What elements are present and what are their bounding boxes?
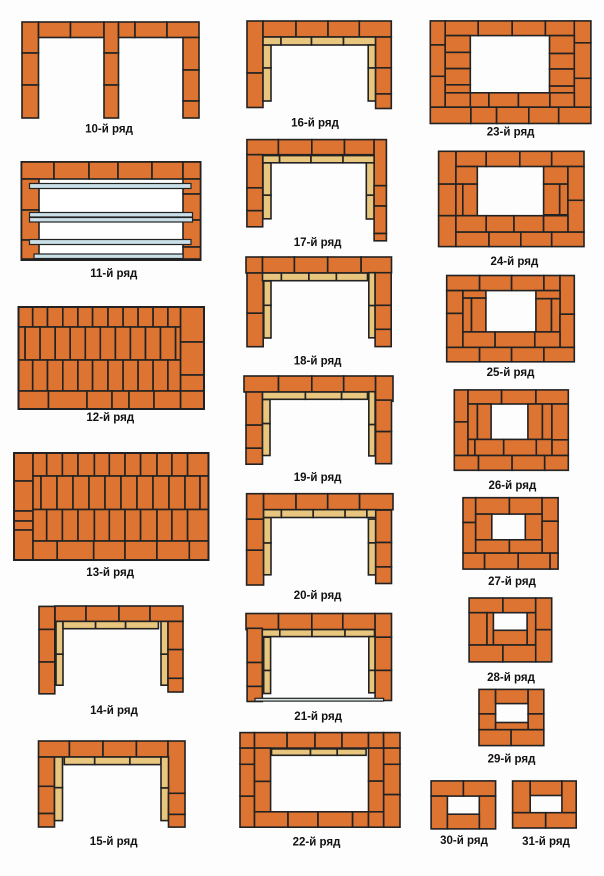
svg-text:31-й ряд: 31-й ряд <box>522 836 570 848</box>
svg-text:22-й ряд: 22-й ряд <box>293 837 341 849</box>
svg-text:14-й ряд: 14-й ряд <box>90 705 138 717</box>
svg-text:15-й ряд: 15-й ряд <box>90 836 138 848</box>
svg-text:29-й ряд: 29-й ряд <box>488 754 536 766</box>
svg-text:24-й ряд: 24-й ряд <box>491 256 539 268</box>
svg-text:11-й ряд: 11-й ряд <box>90 268 138 280</box>
svg-text:18-й ряд: 18-й ряд <box>294 356 342 368</box>
svg-text:28-й ряд: 28-й ряд <box>487 672 535 684</box>
svg-text:17-й ряд: 17-й ряд <box>294 237 342 249</box>
svg-text:12-й ряд: 12-й ряд <box>86 412 134 424</box>
svg-text:30-й ряд: 30-й ряд <box>440 835 488 847</box>
svg-text:23-й ряд: 23-й ряд <box>487 127 535 139</box>
svg-text:19-й ряд: 19-й ряд <box>294 472 342 484</box>
svg-text:16-й ряд: 16-й ряд <box>291 118 339 130</box>
svg-text:13-й ряд: 13-й ряд <box>86 567 134 579</box>
svg-text:21-й ряд: 21-й ряд <box>294 711 342 723</box>
svg-text:26-й ряд: 26-й ряд <box>489 480 537 492</box>
svg-text:10-й ряд: 10-й ряд <box>85 124 133 136</box>
svg-text:20-й ряд: 20-й ряд <box>294 590 342 602</box>
svg-text:25-й ряд: 25-й ряд <box>487 367 535 379</box>
svg-text:27-й ряд: 27-й ряд <box>488 576 536 588</box>
